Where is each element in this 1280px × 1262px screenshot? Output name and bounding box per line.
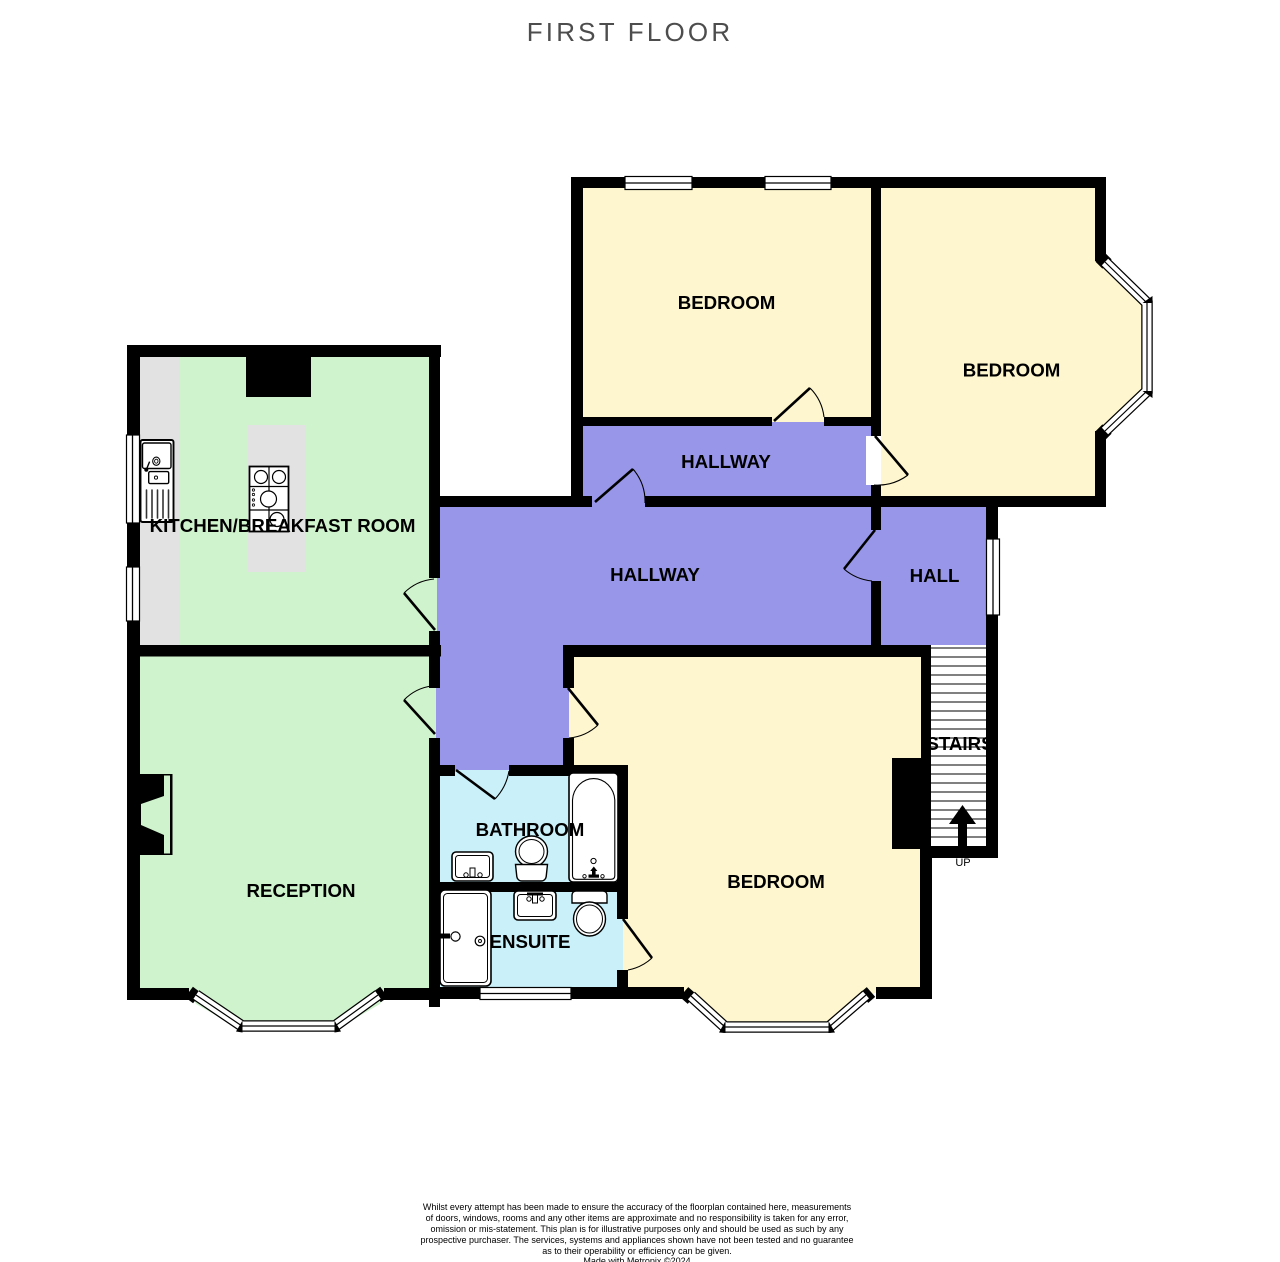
svg-text:RECEPTION: RECEPTION — [246, 880, 355, 901]
svg-text:BATHROOM: BATHROOM — [476, 819, 585, 840]
svg-text:HALLWAY: HALLWAY — [610, 564, 700, 585]
svg-text:BEDROOM: BEDROOM — [963, 360, 1061, 381]
svg-text:HALL: HALL — [910, 565, 960, 586]
svg-text:Whilst every attempt has been: Whilst every attempt has been made to en… — [423, 1202, 852, 1212]
svg-text:as to their operability or eff: as to their operability or efficiency ca… — [542, 1246, 731, 1256]
svg-text:Made with Metropix ©2024: Made with Metropix ©2024 — [583, 1256, 690, 1262]
svg-text:HALLWAY: HALLWAY — [681, 451, 771, 472]
svg-text:of doors, windows, rooms and a: of doors, windows, rooms and any other i… — [426, 1213, 849, 1223]
svg-text:UP: UP — [955, 857, 970, 869]
svg-text:ENSUITE: ENSUITE — [490, 931, 571, 952]
svg-text:prospective purchaser. The ser: prospective purchaser. The services, sys… — [420, 1235, 853, 1245]
svg-text:BEDROOM: BEDROOM — [678, 292, 776, 313]
svg-text:omission or mis-statement. Thi: omission or mis-statement. This plan is … — [430, 1224, 844, 1234]
svg-text:BEDROOM: BEDROOM — [727, 871, 825, 892]
svg-text:STAIRS: STAIRS — [926, 733, 993, 754]
svg-text:FIRST FLOOR: FIRST FLOOR — [527, 17, 734, 47]
svg-text:KITCHEN/BREAKFAST ROOM: KITCHEN/BREAKFAST ROOM — [150, 515, 416, 536]
